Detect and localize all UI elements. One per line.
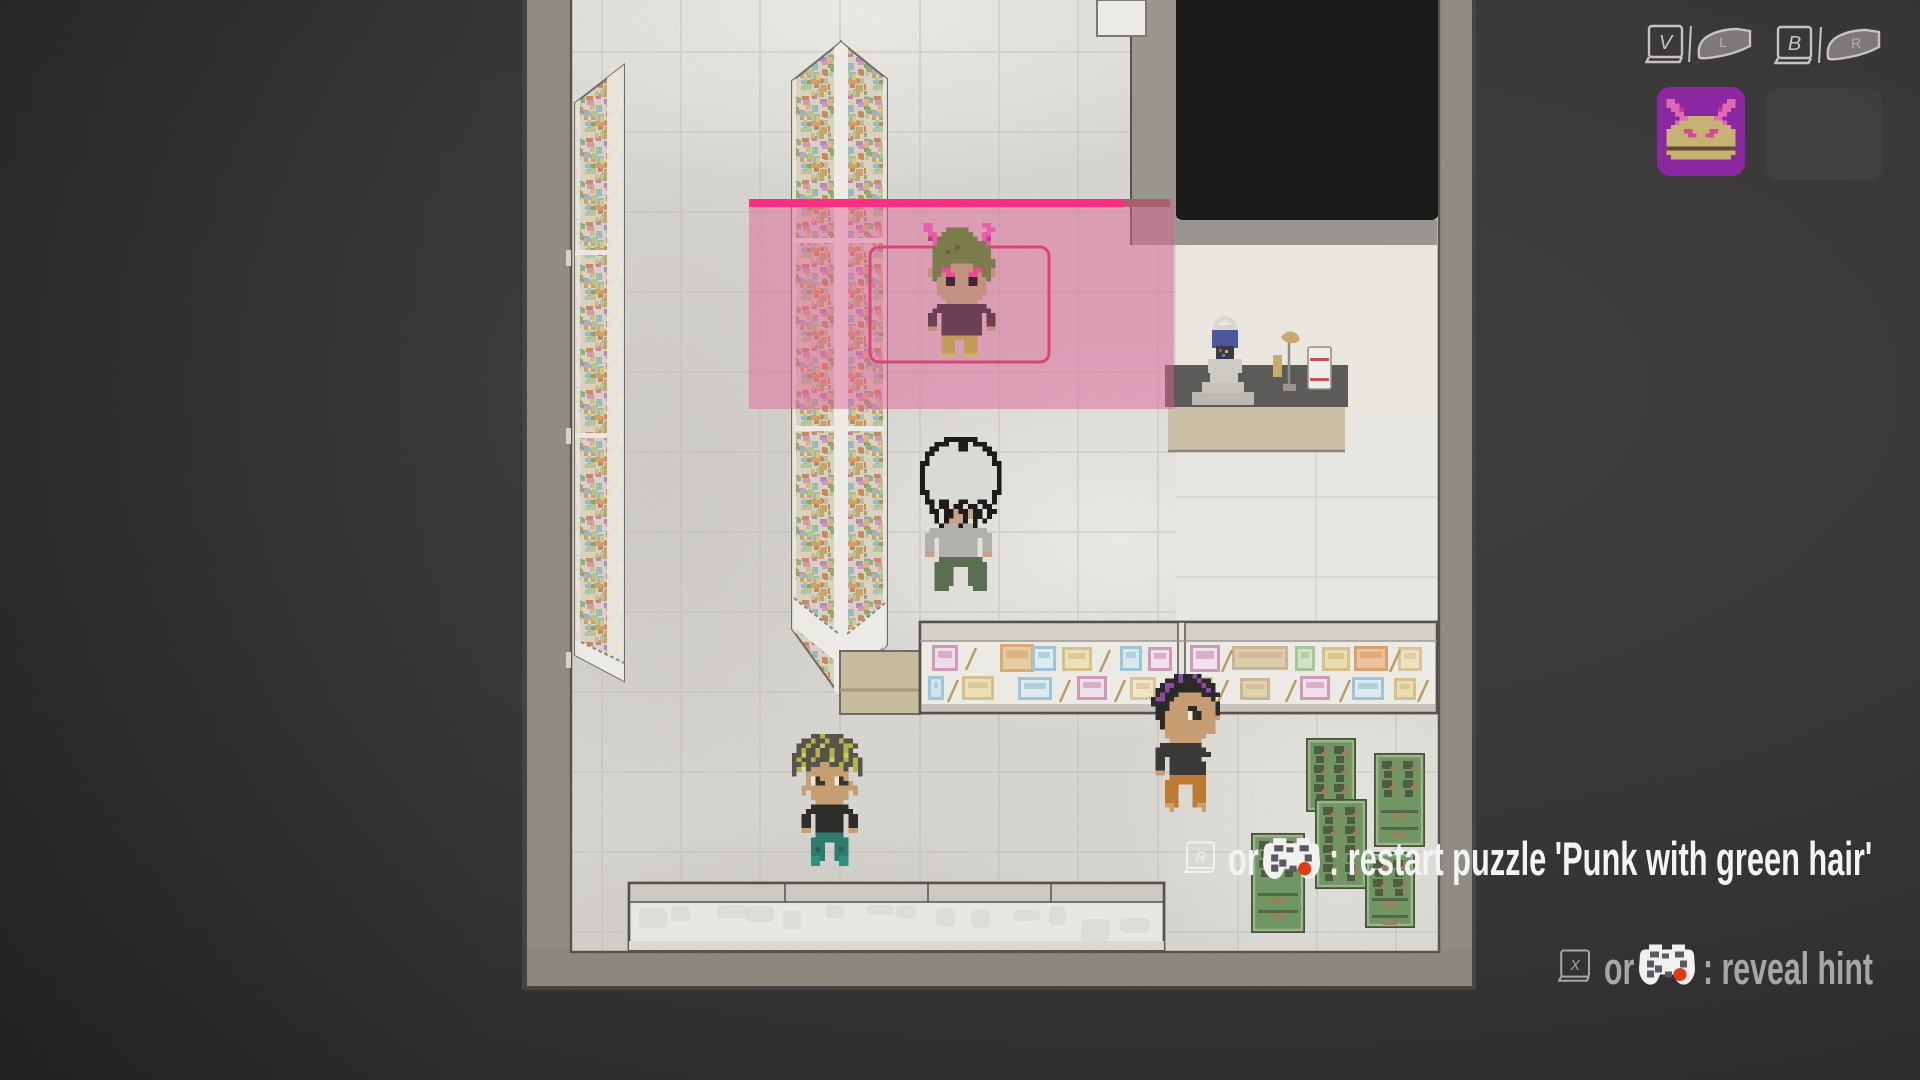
svg-text:L: L [1719, 34, 1727, 50]
svg-text:B: B [1788, 33, 1801, 55]
svg-text:R: R [1196, 848, 1206, 864]
svg-text:V: V [1659, 32, 1674, 54]
svg-text:X: X [1569, 958, 1580, 974]
svg-text:R: R [1851, 35, 1861, 51]
